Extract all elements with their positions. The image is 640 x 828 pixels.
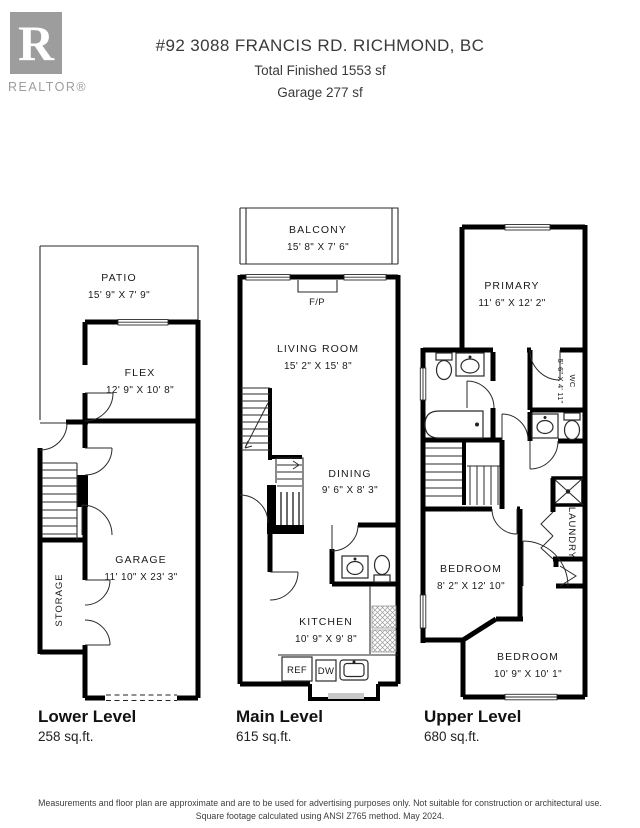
living-window [344,275,386,281]
bath-door [467,381,494,408]
dishwasher-label: DW [318,666,334,677]
lower-level-plan: PATIO 15' 9" X 7' 9" FLEX 12' 9" X 10' 8… [40,246,198,703]
primary-window [505,225,550,231]
primary-dims: 11' 6" X 12' 2" [478,298,545,309]
primary-hall-door [502,414,528,440]
main-level-area: 615 sq.ft. [236,729,292,744]
counter-hatch-1 [372,606,396,628]
closet-door [240,495,268,523]
main-level-title: Main Level [236,707,323,727]
bedroom2-label: BEDROOM [497,651,559,663]
dining-dims: 9' 6" X 8' 3" [322,485,378,496]
bath-sink-icon [456,353,484,376]
counter-hatch-2 [372,630,396,652]
fireplace-box [298,280,337,292]
laundry-label: LAUNDRY [566,507,577,559]
bedroom2-window [505,694,557,700]
garage-label: GARAGE [115,554,167,566]
flex-label: FLEX [125,367,156,379]
diagonal-wall [463,619,496,640]
ensuite-door [530,441,558,469]
wc-label: WC [568,375,577,388]
bedroom1-door [492,509,517,534]
powder-toilet-icon [374,556,390,583]
ensuite-toilet-icon [564,413,580,440]
pantry-door [270,572,298,600]
wc-door [530,350,560,380]
stair-side-wall [77,475,88,507]
bedroom2-dims: 10' 9" X 10' 1" [494,669,562,680]
hall-garage-door [85,448,112,475]
flex-door [85,393,113,421]
main-stairs [241,388,304,534]
bath-toilet-icon [436,353,452,380]
upper-stairs [425,441,502,505]
upper-level-plan: PRIMARY 11' 6" X 12' 2" 5' 6" X 4' 11" W… [420,225,585,700]
balcony-outline [240,208,398,264]
kitchen-sink-icon [340,660,368,680]
bedroom1-label: BEDROOM [440,563,502,575]
wc-dims: 5' 6" X 4' 11" [556,359,565,404]
upper-level-title: Upper Level [424,707,521,727]
primary-label: PRIMARY [484,280,539,292]
entry-door [40,423,67,450]
floorplan-canvas: PATIO 15' 9" X 7' 9" FLEX 12' 9" X 10' 8… [0,0,640,828]
garage-dims: 11' 10" X 23' 3" [104,572,177,583]
bath-window [420,368,426,400]
disclaimer-line2: Square footage calculated using ANSI Z76… [0,811,640,821]
balcony-sliding-door [246,275,290,281]
bedroom2-door [523,541,568,586]
floorplan-page: { "header": { "brand": {"letter": "R", "… [0,0,640,828]
storage-french-doors [85,580,110,645]
dining-label: DINING [328,468,371,480]
bedroom1-window [420,595,426,628]
lower-level-title: Lower Level [38,707,136,727]
ensuite-sink-icon [532,414,558,438]
bathtub-icon [425,411,483,438]
living-dims: 15' 2" X 15' 8" [284,361,352,372]
lower-stairs [42,463,77,540]
entry-step [328,693,364,699]
balcony-label: BALCONY [289,224,347,236]
lower-level-area: 258 sq.ft. [38,729,94,744]
patio-label: PATIO [101,272,136,284]
patio-dims: 15' 9" X 7' 9" [88,290,150,301]
main-level-plan: BALCONY 15' 8" X 7' 6" F/P LIVING ROOM 1… [240,208,398,699]
chase-shaft [553,478,583,505]
fridge-label: REF [287,665,307,676]
powder-sink-icon [342,556,368,578]
upper-level-area: 680 sq.ft. [424,729,480,744]
flex-window [118,320,168,326]
laundry-bifold-doors [541,512,553,559]
powder-door [332,525,358,551]
living-label: LIVING ROOM [277,343,359,355]
bedroom1-dims: 8' 2" X 12' 10" [437,581,505,592]
flex-dims: 12' 9" X 10' 8" [106,385,174,396]
fireplace-label: F/P [309,297,325,308]
disclaimer-line1: Measurements and floor plan are approxim… [0,798,640,808]
kitchen-dims: 10' 9" X 9' 8" [295,634,357,645]
storage-label: STORAGE [54,573,65,626]
kitchen-label: KITCHEN [299,616,353,628]
balcony-dims: 15' 8" X 7' 6" [287,242,349,253]
